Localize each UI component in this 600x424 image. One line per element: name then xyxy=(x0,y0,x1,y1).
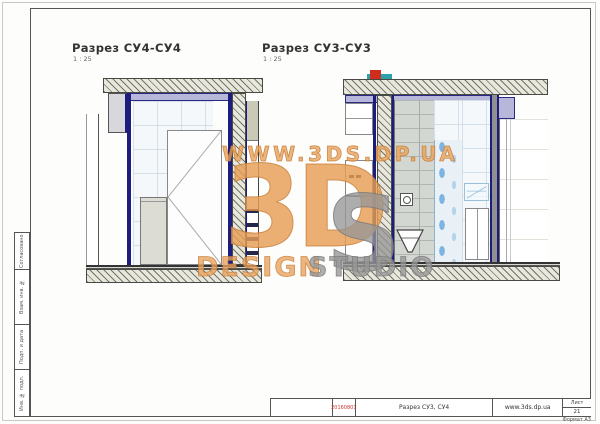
wall-hatch-column xyxy=(232,93,246,265)
title-block-code: 20160801 xyxy=(333,399,356,416)
shelf-niche xyxy=(246,101,259,265)
door-swing-lines xyxy=(168,131,221,264)
flush-button-icon xyxy=(403,196,411,204)
view-title-su3: Разрез СУ3-СУ3 xyxy=(262,41,371,55)
shelf-bar xyxy=(247,223,258,227)
wall-hatch-column xyxy=(377,95,392,270)
sheet-number-box: Лист 21 xyxy=(563,399,591,416)
view-title-su4: Разрез СУ4-СУ4 xyxy=(72,41,181,55)
floor-slab-hatch xyxy=(86,269,262,283)
upper-cabinet xyxy=(345,103,373,135)
middle-cabinet xyxy=(345,160,373,196)
sheet-label: Лист xyxy=(563,399,591,408)
view-scale-su4: 1 : 25 xyxy=(73,55,92,63)
blue-mosaic-accent-wall xyxy=(434,140,462,262)
lintel-block xyxy=(498,97,515,119)
side-strip-cell: Инв. № подл. xyxy=(14,369,30,417)
side-label: Подп. и дата xyxy=(19,330,25,364)
cabinet-divider-line xyxy=(477,209,478,259)
side-strip-cell: Взам. инв. № xyxy=(14,269,30,325)
cabinet-knob xyxy=(349,175,354,178)
title-block: 20160801 Разрез СУ3, СУ4 www.3ds.dp.ua Л… xyxy=(270,398,591,417)
vanity-cabinet xyxy=(465,208,489,260)
side-label: Взам. инв. № xyxy=(19,280,25,315)
section-view-su4 xyxy=(85,76,263,284)
tile-strip-top xyxy=(434,100,462,140)
lower-cabinet xyxy=(345,196,373,262)
title-block-website: www.3ds.dp.ua xyxy=(493,399,563,416)
title-block-empty-cell xyxy=(271,399,333,416)
cabinet-shelf-line xyxy=(346,118,372,119)
view-scale-su3: 1 : 25 xyxy=(263,55,282,63)
wall-section-line xyxy=(373,95,376,270)
wall-hung-toilet xyxy=(396,228,424,254)
drawing-sheet: Согласовано Взам. инв. № Подп. и дата Ин… xyxy=(0,0,600,424)
flush-plate xyxy=(400,193,413,206)
niche-top-panel xyxy=(247,101,258,141)
section-view-su3 xyxy=(343,70,560,285)
low-cabinet xyxy=(140,197,167,265)
adjacent-room-wall xyxy=(499,119,548,262)
sheet-number: 21 xyxy=(563,408,591,416)
wall-face-line xyxy=(506,119,507,262)
wall-section-left xyxy=(127,93,131,265)
shelf-bar xyxy=(247,237,258,241)
side-label: Инв. № подл. xyxy=(19,375,25,410)
washbasin-sketch-lines xyxy=(465,184,488,200)
door xyxy=(167,130,222,265)
format-label: Формат А3 xyxy=(480,417,591,424)
shelf-bar xyxy=(247,251,258,255)
side-strip-cell: Подп. и дата xyxy=(14,324,30,370)
wall-face-line xyxy=(510,119,511,262)
cabinet-knob xyxy=(356,175,361,178)
floor-slab-hatch xyxy=(343,266,560,281)
wall-block xyxy=(108,93,128,133)
ceiling-slab-hatch xyxy=(103,78,263,93)
cabinet-top-line xyxy=(141,201,166,202)
pipe-hot-water xyxy=(370,70,381,79)
washbasin xyxy=(464,183,489,201)
side-label: Согласовано xyxy=(19,234,25,268)
side-strip-cell: Согласовано xyxy=(14,232,30,270)
title-block-doc-title: Разрез СУ3, СУ4 xyxy=(356,399,494,416)
shelf-bar xyxy=(247,209,258,213)
ceiling-slab-hatch xyxy=(343,79,548,95)
outer-wall-face xyxy=(86,114,99,265)
